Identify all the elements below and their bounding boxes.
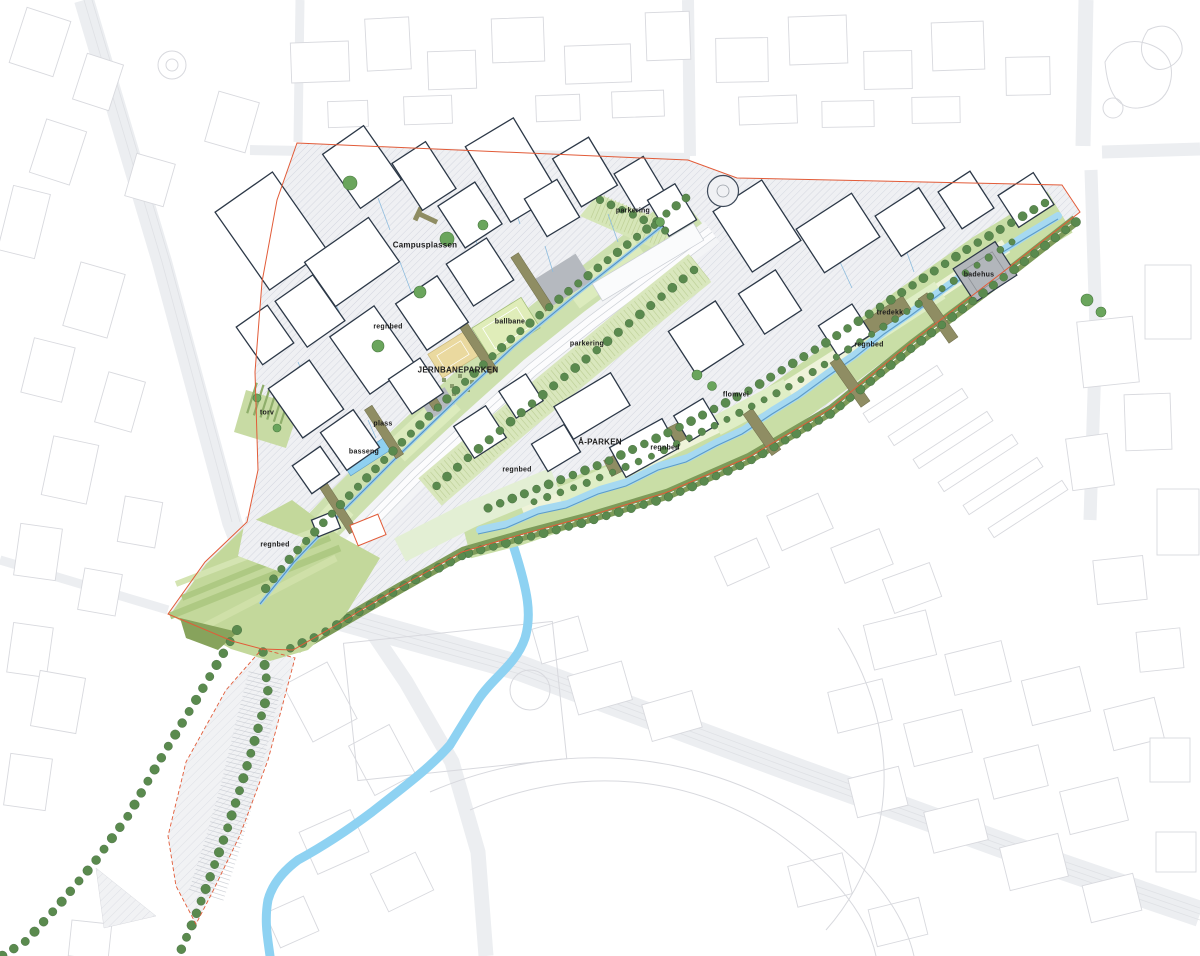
- tail-hatch-sw-patch: [96, 868, 156, 928]
- site-plan-drawing: [0, 0, 1200, 956]
- masterplan-stage: CampusplassenparkeringregnbedballbaneJER…: [0, 0, 1200, 956]
